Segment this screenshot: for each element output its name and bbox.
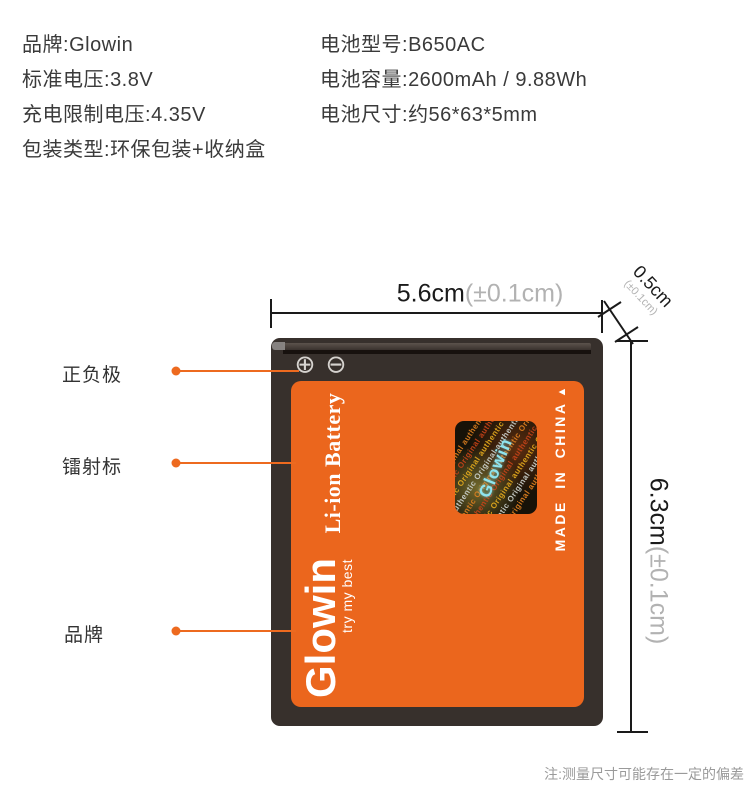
measurement-disclaimer-note: 注:测量尺寸可能存在一定的偏差	[544, 764, 744, 784]
origin-label: MADE IN CHINA	[552, 402, 568, 552]
spec-list-right: 电池型号:B650AC 电池容量:2600mAh / 9.88Wh 电池尺寸:约…	[320, 28, 587, 133]
hologram-sticker: Original authentic Original authentic Or…	[455, 421, 537, 514]
dim-value: 6.3cm	[645, 478, 673, 546]
dim-tolerance: (±0.1cm)	[465, 280, 563, 308]
spec-label: 品牌:	[22, 34, 69, 56]
width-dimension-label: 5.6cm(±0.1cm)	[397, 280, 564, 309]
battery-type-text: Li-ion Battery	[320, 393, 346, 534]
battery-front-panel: Li-ion Battery Glowin try my best MADE I…	[291, 381, 584, 707]
negative-terminal-icon: ⊖	[326, 352, 347, 377]
spec-value: 2600mAh / 9.88Wh	[408, 69, 587, 91]
spec-package-type: 包装类型:环保包装+收纳盒	[22, 133, 266, 168]
spec-size: 电池尺寸:约56*63*5mm	[320, 98, 587, 133]
leader-dot	[172, 627, 181, 636]
leader-dot	[172, 459, 181, 468]
battery-image: ⊕ ⊖ Li-ion Battery Glowin try my best MA…	[271, 338, 603, 726]
spec-value: 3.8V	[110, 69, 153, 91]
battery-brand-text: Glowin	[297, 558, 345, 698]
dim-tolerance: (±0.1cm)	[645, 546, 673, 644]
leader-dot	[172, 367, 181, 376]
spec-voltage: 标准电压:3.8V	[22, 63, 266, 98]
spec-charge-limit-voltage: 充电限制电压:4.35V	[22, 98, 266, 133]
height-dimension-label: 6.3cm(±0.1cm)	[644, 478, 673, 645]
spec-value: Glowin	[69, 34, 133, 56]
thickness-dimension-label: 0.5cm (±0.1cm)	[620, 262, 677, 320]
battery-product-diagram: 品牌:Glowin 标准电压:3.8V 充电限制电压:4.35V 包装类型:环保…	[0, 0, 750, 806]
spec-label: 标准电压:	[22, 69, 110, 91]
battery-slogan-text: try my best	[339, 559, 355, 633]
spec-label: 电池型号:	[320, 34, 408, 56]
callout-label-hologram: 镭射标	[62, 452, 122, 479]
spec-label: 包装类型:	[22, 139, 110, 161]
spec-capacity: 电池容量:2600mAh / 9.88Wh	[320, 63, 587, 98]
spec-value: 4.35V	[151, 104, 206, 126]
spec-value: 环保包装+收纳盒	[110, 139, 266, 161]
battery-corner-highlight	[272, 342, 285, 350]
spec-value: 约56*63*5mm	[408, 104, 538, 126]
dim-value: 5.6cm	[397, 280, 465, 308]
spec-value: B650AC	[408, 34, 486, 56]
spec-label: 电池尺寸:	[320, 104, 408, 126]
spec-model: 电池型号:B650AC	[320, 28, 587, 63]
made-in-china-text: MADE IN CHINA▲	[552, 387, 568, 552]
spec-list-left: 品牌:Glowin 标准电压:3.8V 充电限制电压:4.35V 包装类型:环保…	[22, 28, 266, 168]
positive-terminal-icon: ⊕	[295, 352, 316, 377]
thickness-dimension-line	[598, 301, 638, 344]
spec-brand: 品牌:Glowin	[22, 28, 266, 63]
callout-label-brand: 品牌	[64, 620, 104, 647]
spec-label: 电池容量:	[320, 69, 408, 91]
callout-label-terminals: 正负极	[62, 360, 122, 387]
triangle-up-icon: ▲	[556, 387, 568, 398]
spec-label: 充电限制电压:	[22, 104, 151, 126]
